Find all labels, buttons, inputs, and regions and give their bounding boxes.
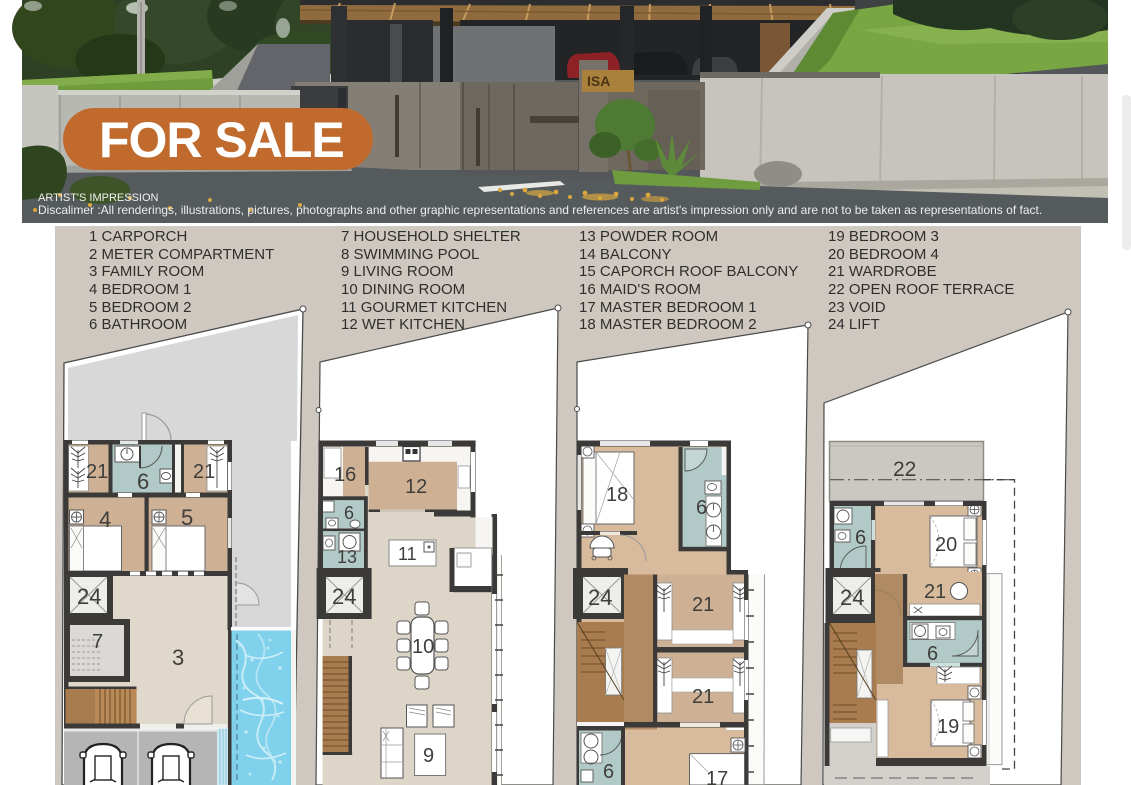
svg-text:6: 6 (696, 497, 707, 519)
svg-text:13 POWDER ROOM: 13 POWDER ROOM (579, 228, 718, 245)
svg-text:11 GOURMET KITCHEN: 11 GOURMET KITCHEN (341, 299, 507, 316)
svg-text:6: 6 (137, 469, 149, 494)
svg-text:14 BALCONY: 14 BALCONY (579, 246, 672, 263)
svg-text:4 BEDROOM 1: 4 BEDROOM 1 (89, 281, 192, 298)
svg-text:8 SWIMMING POOL: 8 SWIMMING POOL (341, 246, 479, 263)
svg-text:21: 21 (193, 461, 215, 483)
svg-text:20: 20 (935, 534, 957, 556)
svg-text:2 METER COMPARTMENT: 2 METER COMPARTMENT (89, 246, 274, 263)
svg-text:FOR SALE: FOR SALE (99, 112, 344, 168)
svg-text:3 FAMILY ROOM: 3 FAMILY ROOM (89, 263, 204, 280)
svg-text:6 BATHROOM: 6 BATHROOM (89, 316, 187, 333)
svg-text:17: 17 (706, 768, 728, 785)
svg-text:12 WET KITCHEN: 12 WET KITCHEN (341, 316, 465, 333)
svg-text:ISA: ISA (587, 73, 610, 89)
svg-text:23 VOID: 23 VOID (828, 299, 886, 316)
svg-text:22 OPEN ROOF TERRACE: 22 OPEN ROOF TERRACE (828, 281, 1014, 298)
svg-text:18: 18 (606, 484, 628, 506)
svg-text:3: 3 (172, 645, 184, 670)
svg-text:18 MASTER BEDROOM 2: 18 MASTER BEDROOM 2 (579, 316, 757, 333)
svg-text:16 MAID'S ROOM: 16 MAID'S ROOM (579, 281, 701, 298)
svg-text:24: 24 (840, 585, 864, 610)
svg-text:21: 21 (692, 686, 714, 708)
svg-text:5: 5 (181, 505, 193, 530)
svg-text:13: 13 (337, 547, 357, 567)
svg-text:6: 6 (927, 643, 938, 665)
svg-text:19: 19 (937, 716, 959, 738)
svg-text:21: 21 (692, 594, 714, 616)
svg-text:7 HOUSEHOLD SHELTER: 7 HOUSEHOLD SHELTER (341, 228, 521, 245)
svg-text:10 DINING ROOM: 10 DINING ROOM (341, 281, 465, 298)
svg-text:6: 6 (344, 503, 354, 523)
svg-text:10: 10 (412, 636, 434, 658)
svg-text:6: 6 (603, 761, 614, 783)
svg-text:4: 4 (99, 507, 111, 532)
svg-text:1 CARPORCH: 1 CARPORCH (89, 228, 187, 245)
svg-text:24: 24 (77, 584, 101, 609)
svg-text:24 LIFT: 24 LIFT (828, 316, 880, 333)
svg-text:9: 9 (423, 745, 434, 767)
svg-text:21 WARDROBE: 21 WARDROBE (828, 263, 937, 280)
svg-text:24: 24 (332, 584, 356, 609)
svg-text:19 BEDROOM 3: 19 BEDROOM 3 (828, 228, 939, 245)
svg-text:21: 21 (86, 461, 108, 483)
svg-text:16: 16 (334, 464, 356, 486)
svg-text:7: 7 (92, 631, 103, 653)
svg-text:15 CAPORCH ROOF BALCONY: 15 CAPORCH ROOF BALCONY (579, 263, 798, 280)
svg-text:6: 6 (855, 527, 866, 549)
svg-text:12: 12 (405, 476, 427, 498)
svg-text:17 MASTER BEDROOM 1: 17 MASTER BEDROOM 1 (579, 299, 757, 316)
svg-text:21: 21 (924, 581, 946, 603)
svg-text:5 BEDROOM 2: 5 BEDROOM 2 (89, 299, 192, 316)
svg-text:20 BEDROOM 4: 20 BEDROOM 4 (828, 246, 939, 263)
svg-text:9 LIVING ROOM: 9 LIVING ROOM (341, 263, 454, 280)
svg-text:11: 11 (398, 544, 417, 564)
svg-text:24: 24 (588, 585, 612, 610)
svg-text:22: 22 (893, 458, 916, 481)
svg-text:Discalimer :All renderings, il: Discalimer :All renderings, illustration… (38, 203, 1042, 217)
